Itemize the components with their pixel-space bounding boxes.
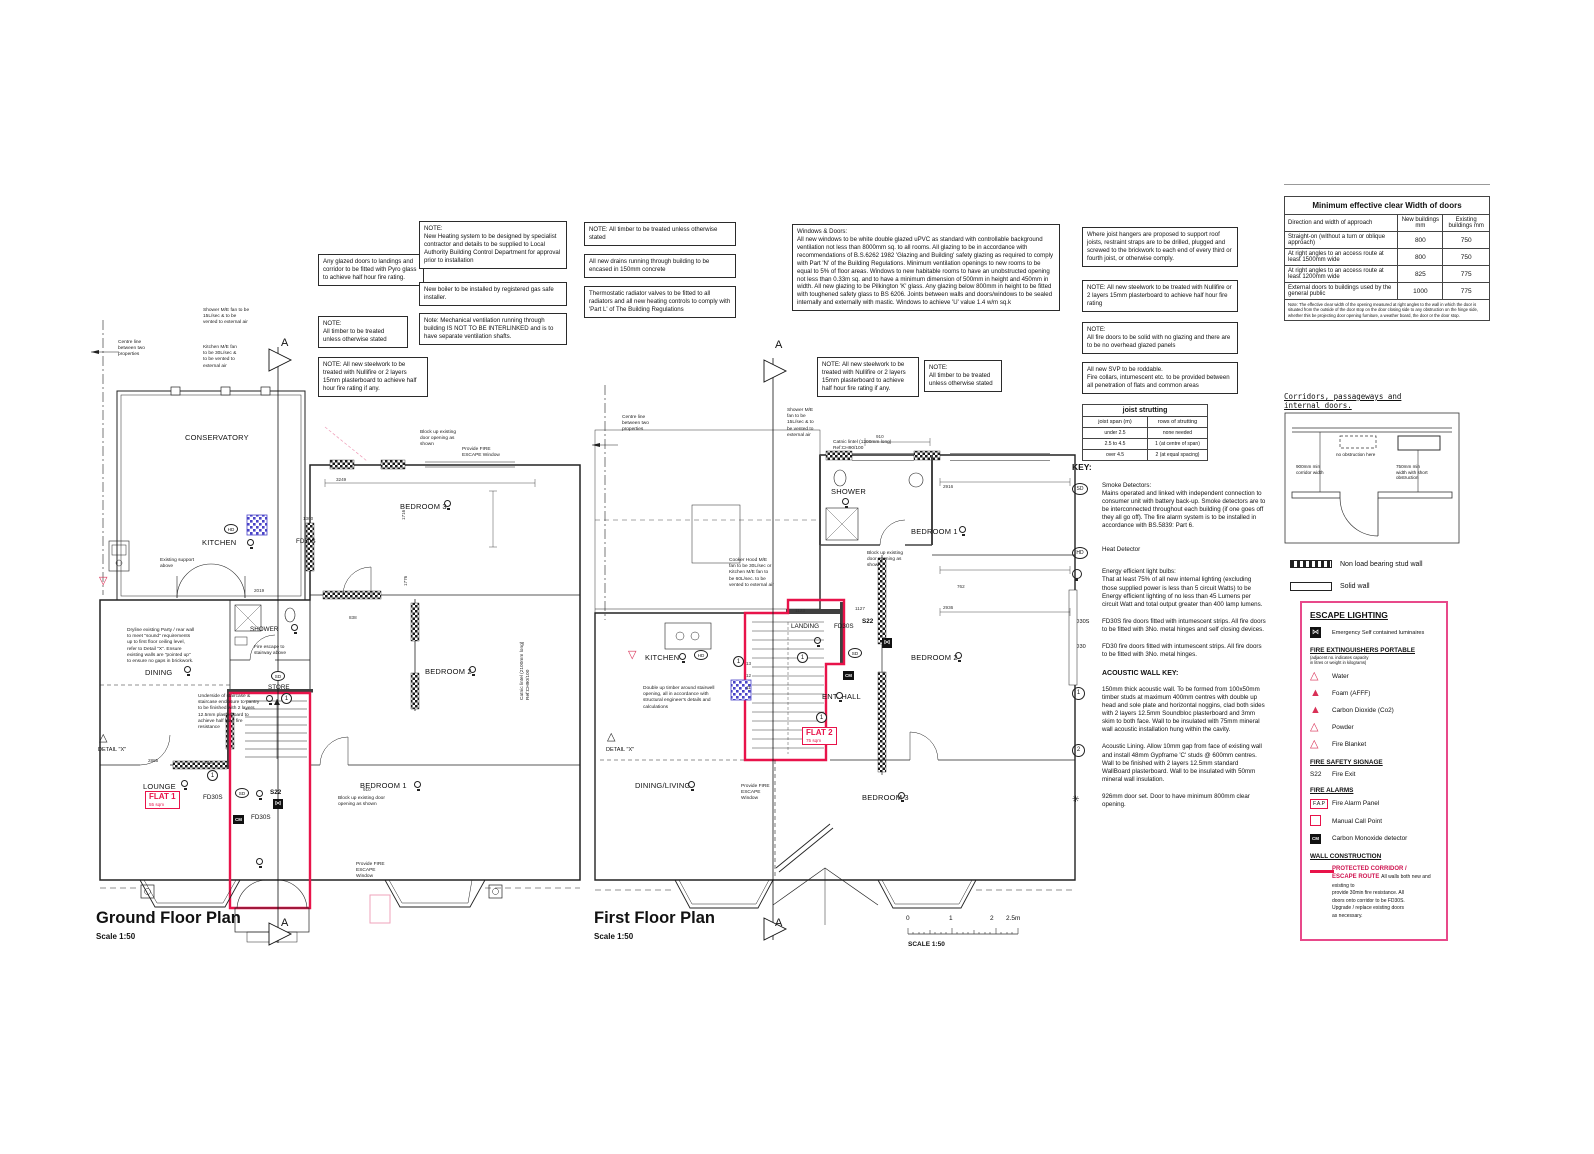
- plan-label: Centre line between two properties: [118, 340, 145, 359]
- c1-icon: 1: [733, 656, 744, 667]
- plan-label: Block up existing door opening as shown: [420, 430, 456, 449]
- plan-label: S22: [270, 789, 281, 797]
- plan-label: Catnic lintel (1200mm long) Ref:CH90/100: [833, 440, 891, 452]
- plan-label: Centre line between two properties: [622, 415, 649, 434]
- bulb-icon: [842, 498, 849, 505]
- plan-label: A: [281, 916, 288, 930]
- c1-icon: 1: [281, 693, 292, 704]
- bulb-icon: [256, 790, 263, 797]
- plan-label: Shower M/E fan to be 15L/sec & to be ven…: [787, 408, 814, 439]
- bulb-icon: [688, 781, 695, 788]
- plan-label: BEDROOM 2: [911, 653, 958, 663]
- plan-annotations-overlay: Centre line between two propertiesShower…: [0, 0, 1594, 1154]
- exit-icon: ⋈: [273, 799, 283, 809]
- plan-label: DINING: [145, 668, 172, 678]
- hd-icon: HD: [694, 650, 708, 660]
- plan-label: LANDING: [791, 623, 819, 631]
- plan-label: 1300: [303, 516, 313, 522]
- bulb-icon: [266, 695, 273, 702]
- plan-label: 910: [363, 787, 371, 793]
- bulb-icon: [814, 637, 821, 644]
- plan-label: 910: [876, 434, 884, 440]
- c1-icon: 1: [207, 770, 218, 781]
- trio-icon: △: [99, 733, 107, 744]
- plan-label: 838: [349, 615, 357, 621]
- plan-label: Kitchen M/E fan to be 30L/sec & to be ve…: [203, 345, 237, 370]
- plan-label: 13: [746, 661, 751, 667]
- bulb-icon: [414, 781, 421, 788]
- plan-label: 734: [204, 760, 212, 766]
- plan-label: 2885: [148, 758, 158, 764]
- plan-label: 1776: [403, 576, 409, 586]
- bulb-icon: [256, 858, 263, 865]
- plan-label: SHOWER: [831, 487, 866, 497]
- plan-label: 2936: [943, 605, 953, 611]
- plan-label: Catnic lintel (2100mm long) Ref:CH90/100: [520, 642, 532, 700]
- bulb-icon: [444, 500, 451, 507]
- plan-label: A: [281, 336, 288, 350]
- plan-label: Dryline existing Party / rear wall to me…: [127, 628, 194, 665]
- bulb-icon: [247, 539, 254, 546]
- plan-label: Scale 1:50: [594, 932, 633, 942]
- bulb-icon: [955, 652, 962, 659]
- plan-label: 762: [957, 584, 965, 590]
- plan-label: DETAIL "X": [606, 747, 634, 754]
- plan-label: FD30S: [251, 814, 271, 822]
- bulb-icon: [959, 526, 966, 533]
- plan-label: Fire escape to stairway above: [254, 645, 286, 657]
- plan-label: 1123: [795, 608, 805, 614]
- plan-label: Cooker Hood M/E fan to be 30L/sec or Kit…: [729, 558, 774, 589]
- plan-label: KITCHEN: [645, 653, 679, 663]
- plan-label: FD30S: [203, 794, 223, 802]
- plan-label: FD30S: [834, 623, 854, 631]
- plan-label: Shower M/E fan to be 15L/sec & to be ven…: [203, 308, 249, 327]
- plan-label: DINING/LIVING: [635, 781, 691, 791]
- bulb-icon: [291, 624, 298, 631]
- sd-icon: SD: [271, 671, 285, 681]
- plan-label: Block up existing door opening as shown: [338, 796, 385, 808]
- plan-label: Block up existing door opening as shown: [867, 551, 903, 570]
- plan-label: S22: [862, 618, 873, 626]
- plan-label: CONSERVATORY: [185, 433, 249, 443]
- plan-label: FD30S: [296, 538, 316, 546]
- bulb-icon: [469, 666, 476, 673]
- plan-label: 3249: [336, 477, 346, 483]
- plan-label: Provide FIRE ESCAPE Window: [356, 862, 385, 881]
- trired-icon: ▽: [99, 576, 107, 587]
- sd-icon: SD: [848, 648, 862, 658]
- cm-icon: CM: [843, 671, 854, 680]
- bulb-icon: [898, 792, 905, 799]
- plan-label: Provide FIRE ESCAPE Window: [462, 447, 500, 459]
- plan-label: Double up timber around stairwell openin…: [643, 686, 714, 711]
- plan-label: A: [775, 916, 782, 930]
- plan-label: Provide FIRE ESCAPE Window: [741, 784, 770, 803]
- c1-icon: 1: [816, 712, 827, 723]
- plan-label: 12: [746, 673, 751, 679]
- plan-label: First Floor Plan: [594, 908, 715, 929]
- plan-label: 11: [746, 685, 751, 691]
- c1-icon: 1: [797, 652, 808, 663]
- plan-label: BEDROOM 3: [400, 502, 447, 512]
- plan-label: Ground Floor Plan: [96, 908, 241, 929]
- bulb-icon: [679, 653, 686, 660]
- plan-label: Underside of staircase & staircase enclo…: [198, 694, 259, 731]
- plan-label: BEDROOM 2: [425, 667, 472, 677]
- plan-label: KITCHEN: [202, 538, 236, 548]
- plan-label: SHOWER: [250, 626, 278, 634]
- plan-label: 2916: [943, 484, 953, 490]
- bulb-icon: [181, 780, 188, 787]
- plan-label: 1127: [855, 606, 865, 612]
- plan-label: LOUNGE: [143, 782, 176, 792]
- exit-icon: ⋈: [882, 638, 892, 648]
- trio-icon: △: [607, 732, 615, 743]
- plan-label: Existing support above: [160, 558, 194, 570]
- drawing-sheet: Any glazed doors to landings and corrido…: [0, 0, 1594, 1154]
- sd-icon: SD: [235, 788, 249, 798]
- plan-label: 2019: [254, 588, 264, 594]
- hd-icon: HD: [224, 524, 238, 534]
- plan-label: DETAIL "X": [98, 747, 126, 754]
- plan-label: Scale 1:50: [96, 932, 135, 942]
- cm-icon: CM: [233, 815, 244, 824]
- plan-label: STORE: [268, 684, 290, 692]
- trired-icon: ▽: [628, 650, 636, 661]
- plan-label: 1716: [401, 510, 407, 520]
- bulb-icon: [836, 692, 843, 699]
- bulb-icon: [184, 666, 191, 673]
- plan-label: A: [775, 338, 782, 352]
- plan-label: BEDROOM 1: [911, 527, 958, 537]
